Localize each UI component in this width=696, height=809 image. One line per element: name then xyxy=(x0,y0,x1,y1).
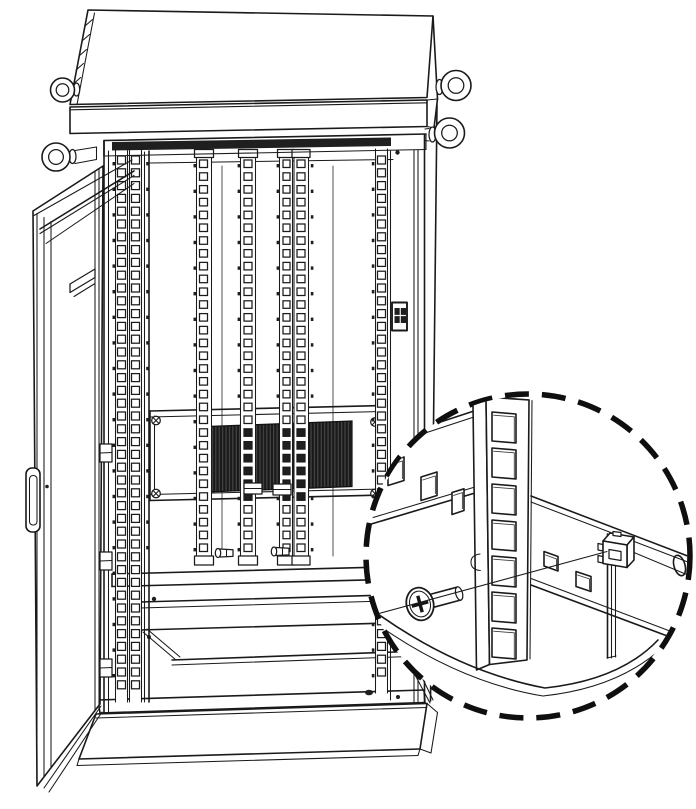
rack-hole xyxy=(283,237,290,245)
rack-hole xyxy=(132,271,140,279)
rack-hole xyxy=(378,438,386,446)
rack-hole xyxy=(118,322,126,330)
rack-hole xyxy=(200,467,208,475)
rack-hole xyxy=(118,489,126,497)
rack-hole xyxy=(118,297,126,305)
rack-hole xyxy=(118,450,126,458)
rack-hole xyxy=(378,246,386,254)
detail-rail-holes xyxy=(492,412,516,659)
rack-hole xyxy=(297,250,305,258)
rack-hole xyxy=(244,326,252,334)
rack-hole xyxy=(200,403,208,411)
rack-hole xyxy=(297,493,305,501)
rack-hole xyxy=(283,186,290,194)
rack-hole xyxy=(132,578,140,586)
rack-hole xyxy=(297,378,305,386)
rivet-dot xyxy=(372,162,375,165)
rack-hole xyxy=(378,642,386,650)
rack-hole xyxy=(200,416,208,424)
technical-illustration xyxy=(0,0,696,809)
rack-hole xyxy=(283,506,290,513)
rack-hole xyxy=(297,352,305,360)
rivet-dot xyxy=(238,497,241,500)
rack-hole xyxy=(132,566,140,574)
rack-hole xyxy=(297,403,305,411)
rivet-dot xyxy=(372,188,375,191)
rivet-dot xyxy=(311,497,314,500)
rack-hole xyxy=(244,352,252,360)
rack-hole xyxy=(378,271,386,279)
eyebolt-right-lower xyxy=(425,118,465,148)
rivet-dot xyxy=(194,369,197,372)
rivet-dot xyxy=(238,164,241,167)
rack-hole xyxy=(297,416,305,424)
loose-screw xyxy=(215,549,233,558)
rivet-dot xyxy=(311,215,314,218)
rack-hole xyxy=(297,211,305,219)
hole-strip-rail-3 xyxy=(279,152,293,558)
rack-hole xyxy=(118,553,126,561)
rack-hole xyxy=(244,467,252,475)
vent-clip-bracket xyxy=(244,483,262,494)
rack-hole xyxy=(283,262,290,270)
panel-screw xyxy=(152,489,161,498)
rivet-dot xyxy=(113,213,116,216)
rack-hole xyxy=(118,194,126,202)
rack-hole xyxy=(200,544,208,552)
rack-hole xyxy=(244,211,252,219)
rivet-dot xyxy=(113,546,116,549)
rack-hole xyxy=(283,301,290,309)
rack-hole xyxy=(118,540,126,548)
rack-hole xyxy=(118,220,126,228)
rack-hole xyxy=(132,540,140,548)
rack-hole xyxy=(118,425,126,433)
rivet-dot xyxy=(372,674,375,677)
hole-strip-left-frame-b xyxy=(129,148,142,702)
rack-hole xyxy=(200,454,208,462)
rivet-dot xyxy=(113,341,116,344)
rivet-dot xyxy=(311,343,314,346)
rack-hole xyxy=(118,169,126,177)
rack-hole xyxy=(200,186,208,194)
hole-strip-left-frame-a xyxy=(115,148,128,702)
rack-hole xyxy=(297,390,305,398)
rivet-dot xyxy=(113,264,116,267)
rack-hole xyxy=(200,442,208,450)
rack-hole xyxy=(297,339,305,347)
rivet-dot xyxy=(372,290,375,293)
rivet-dot xyxy=(372,648,375,651)
rack-hole xyxy=(118,284,126,292)
rack-hole xyxy=(297,518,305,526)
rack-hole xyxy=(378,233,386,241)
door-latch xyxy=(392,303,407,331)
rivet-dot xyxy=(194,446,197,449)
rivet-dot xyxy=(311,522,314,525)
rivet-dot xyxy=(277,522,280,525)
rack-hole xyxy=(132,617,140,625)
rivet-dot xyxy=(194,522,197,525)
rivet-dot xyxy=(372,239,375,242)
rack-hole xyxy=(118,630,126,638)
rivet-dot xyxy=(372,341,375,344)
rack-hole xyxy=(132,489,140,497)
rivet-dot xyxy=(238,266,241,269)
rack-hole xyxy=(132,591,140,599)
rack-hole xyxy=(132,386,140,394)
rack-hole xyxy=(297,365,305,373)
rivet-dot xyxy=(238,548,241,551)
rack-hole xyxy=(132,668,140,676)
rack-hole xyxy=(200,518,208,526)
rack-hole xyxy=(118,578,126,586)
rivet-dot xyxy=(277,369,280,372)
rack-hole xyxy=(283,429,290,437)
rivet-dot xyxy=(311,266,314,269)
rivet-dot xyxy=(372,367,375,370)
rack-hole xyxy=(283,314,290,322)
rack-hole xyxy=(200,339,208,347)
rack-hole xyxy=(118,655,126,663)
rivet-dot xyxy=(194,420,197,423)
rack-hole xyxy=(118,668,126,676)
rack-hole xyxy=(283,352,290,360)
rack-hole xyxy=(283,224,290,232)
rivet-dot xyxy=(277,241,280,244)
rack-hole xyxy=(378,374,386,382)
rivet-dot xyxy=(372,469,375,472)
rivet-dot xyxy=(238,369,241,372)
rivet-dot xyxy=(113,648,116,651)
rack-hole xyxy=(132,463,140,471)
rack-hole xyxy=(283,173,290,181)
rack-hole xyxy=(378,668,386,676)
rack-hole xyxy=(297,288,305,296)
rack-hole xyxy=(378,425,386,433)
rack-hole xyxy=(118,514,126,522)
rail-top-plate xyxy=(292,150,310,158)
rack-hole xyxy=(132,527,140,535)
rack-hole xyxy=(132,438,140,446)
rivet-dot xyxy=(113,239,116,242)
rack-hole xyxy=(118,566,126,574)
rack-hole xyxy=(118,233,126,241)
rivet-dot xyxy=(113,674,116,677)
rail-foot xyxy=(239,556,258,565)
rack-hole xyxy=(283,467,290,475)
rack-hole xyxy=(378,194,386,202)
rack-hole xyxy=(378,412,386,420)
rack-hole xyxy=(132,374,140,382)
rack-hole xyxy=(244,339,252,347)
rack-hole xyxy=(297,237,305,245)
rack-hole xyxy=(118,591,126,599)
rack-hole xyxy=(244,442,252,450)
rack-hole xyxy=(118,386,126,394)
rivet-dot xyxy=(113,597,116,600)
rivet-dot xyxy=(113,623,116,626)
rack-hole xyxy=(378,463,386,471)
rack-hole xyxy=(200,429,208,437)
rack-hole xyxy=(297,314,305,322)
rack-hole xyxy=(378,156,386,164)
rack-hole xyxy=(297,198,305,206)
rack-hole xyxy=(132,655,140,663)
rivet-dot xyxy=(194,497,197,500)
rack-hole xyxy=(378,348,386,356)
rack-hole xyxy=(297,454,305,462)
rivet-dot xyxy=(194,241,197,244)
rivet-dot xyxy=(194,343,197,346)
rivet-dot xyxy=(238,343,241,346)
rivet-dot xyxy=(311,241,314,244)
rack-hole xyxy=(200,326,208,334)
rack-hole xyxy=(200,314,208,322)
rack-hole xyxy=(244,262,252,270)
rack-hole xyxy=(132,476,140,484)
rack-hole xyxy=(297,429,305,437)
rivet-dot xyxy=(194,471,197,474)
rack-hole xyxy=(200,378,208,386)
opening-top-line xyxy=(150,160,393,164)
hole-strip-rail-2 xyxy=(240,152,256,558)
illustration-page xyxy=(0,0,696,809)
rivet-dot xyxy=(238,522,241,525)
rack-hole xyxy=(244,506,252,513)
rivet-dot xyxy=(277,215,280,218)
rivet-dot xyxy=(194,394,197,397)
rack-hole xyxy=(132,514,140,522)
rack-hole xyxy=(200,506,208,513)
rivet-dot xyxy=(194,266,197,269)
rack-hole xyxy=(378,297,386,305)
rack-hole xyxy=(132,246,140,254)
rack-hole xyxy=(283,442,290,450)
rack-hole xyxy=(244,544,252,552)
rivet-dot xyxy=(113,444,116,447)
rack-hole xyxy=(118,502,126,510)
detail-callout xyxy=(366,394,690,718)
rack-hole xyxy=(244,288,252,296)
rivet-dot xyxy=(113,392,116,395)
rack-hole xyxy=(200,365,208,373)
rivet-dot xyxy=(194,292,197,295)
rack-hole xyxy=(118,156,126,164)
rack-hole xyxy=(118,438,126,446)
rack-hole xyxy=(132,502,140,510)
rack-hole xyxy=(132,207,140,215)
rivet-dot xyxy=(311,369,314,372)
rack-hole xyxy=(132,156,140,164)
rack-hole xyxy=(200,237,208,245)
rack-hole xyxy=(132,399,140,407)
rack-hole xyxy=(200,173,208,181)
rack-hole xyxy=(297,301,305,309)
rack-hole xyxy=(378,655,386,663)
rivet-dot xyxy=(194,548,197,551)
rack-hole xyxy=(297,224,305,232)
rack-hole xyxy=(200,160,208,168)
rack-hole xyxy=(297,160,305,168)
rail-foot xyxy=(292,556,310,565)
rack-hole xyxy=(132,553,140,561)
rack-hole xyxy=(200,390,208,398)
rack-hole xyxy=(200,480,208,488)
rack-hole xyxy=(132,194,140,202)
rack-hole xyxy=(297,506,305,513)
panel-screw xyxy=(152,416,161,425)
rack-hole xyxy=(378,182,386,190)
rack-hole xyxy=(132,322,140,330)
rivet-dot xyxy=(194,164,197,167)
rivet-dot xyxy=(113,495,116,498)
rack-hole xyxy=(283,250,290,258)
rack-hole xyxy=(244,275,252,283)
rivet-dot xyxy=(113,520,116,523)
rivet-dot xyxy=(372,316,375,319)
rack-hole xyxy=(378,361,386,369)
rack-hole xyxy=(200,493,208,501)
rack-hole xyxy=(283,365,290,373)
rack-hole xyxy=(378,284,386,292)
rack-hole xyxy=(378,220,386,228)
vent-clip-bracket xyxy=(273,484,291,495)
rivet-dot xyxy=(194,190,197,193)
rack-hole xyxy=(132,182,140,190)
rivet-dot xyxy=(238,215,241,218)
rack-hole xyxy=(118,642,126,650)
rivet-dot xyxy=(238,190,241,193)
rack-hole xyxy=(118,271,126,279)
rack-hole xyxy=(297,442,305,450)
rack-hole xyxy=(297,544,305,552)
rack-hole xyxy=(200,262,208,270)
rack-hole xyxy=(244,390,252,398)
rack-hole xyxy=(244,518,252,526)
door-lock-dot xyxy=(45,485,49,489)
rack-hole xyxy=(200,224,208,232)
rack-hole xyxy=(244,224,252,232)
rivet-dot xyxy=(372,418,375,421)
rack-hole xyxy=(283,454,290,462)
rack-hole xyxy=(118,246,126,254)
rack-hole xyxy=(118,604,126,612)
rack-hole xyxy=(118,399,126,407)
rack-hole xyxy=(244,173,252,181)
rack-hole xyxy=(244,160,252,168)
rivet-dot xyxy=(277,318,280,321)
rivet-dot xyxy=(277,343,280,346)
rivet-dot xyxy=(277,164,280,167)
rivet-dot xyxy=(113,367,116,370)
rack-hole xyxy=(283,198,290,206)
rack-hole xyxy=(283,275,290,283)
rack-hole xyxy=(283,403,290,411)
eyebolt-left xyxy=(42,143,97,171)
rack-hole xyxy=(132,361,140,369)
rack-hole xyxy=(118,361,126,369)
rack-hole xyxy=(200,301,208,309)
door-handle xyxy=(26,468,40,532)
rack-hole xyxy=(297,467,305,475)
band-screw xyxy=(365,690,373,696)
rack-hole xyxy=(132,425,140,433)
rack-hole xyxy=(378,399,386,407)
rack-hole xyxy=(200,198,208,206)
rack-hole xyxy=(244,531,252,539)
rivet-dot xyxy=(113,290,116,293)
roof-top xyxy=(70,10,433,105)
rivet-dot xyxy=(277,190,280,193)
rivet-dot xyxy=(194,215,197,218)
rack-hole xyxy=(283,531,290,539)
frame-screw xyxy=(395,150,399,154)
hole-strip-rail-1 xyxy=(196,152,212,558)
rack-hole xyxy=(283,160,290,168)
rivet-dot xyxy=(113,469,116,472)
rack-hole xyxy=(118,412,126,420)
rack-hole xyxy=(283,211,290,219)
cabinet-roof xyxy=(70,10,438,134)
rivet-dot xyxy=(372,444,375,447)
eyebolt-right-upper xyxy=(436,71,471,101)
rack-hole xyxy=(283,339,290,347)
rack-hole xyxy=(244,378,252,386)
rack-hole xyxy=(283,288,290,296)
rivet-dot xyxy=(113,162,116,165)
rivet-dot xyxy=(113,418,116,421)
rack-hole xyxy=(244,237,252,245)
rack-hole xyxy=(118,258,126,266)
rivet-dot xyxy=(372,264,375,267)
shelf-screw xyxy=(152,597,156,601)
rack-hole xyxy=(118,476,126,484)
rack-hole xyxy=(378,207,386,215)
rivet-dot xyxy=(372,392,375,395)
rack-hole xyxy=(244,403,252,411)
rack-hole xyxy=(297,326,305,334)
rack-hole xyxy=(118,681,126,689)
rivet-dot xyxy=(311,394,314,397)
rack-hole xyxy=(118,374,126,382)
rack-hole xyxy=(378,335,386,343)
rack-hole xyxy=(244,365,252,373)
rack-hole xyxy=(132,310,140,318)
rack-hole xyxy=(244,198,252,206)
rivet-dot xyxy=(238,318,241,321)
rack-hole xyxy=(244,429,252,437)
rack-hole xyxy=(378,258,386,266)
rack-hole xyxy=(132,258,140,266)
rack-hole xyxy=(118,527,126,535)
base-plinth xyxy=(77,704,438,766)
rivet-dot xyxy=(311,548,314,551)
rack-hole xyxy=(132,335,140,343)
rack-hole xyxy=(297,531,305,539)
rack-hole xyxy=(118,617,126,625)
rivet-dot xyxy=(311,164,314,167)
rivet-dot xyxy=(113,572,116,575)
rack-hole xyxy=(132,642,140,650)
rack-hole xyxy=(132,284,140,292)
rivet-dot xyxy=(277,266,280,269)
rack-hole xyxy=(244,314,252,322)
rack-hole xyxy=(283,390,290,398)
rack-hole xyxy=(378,322,386,330)
rivet-dot xyxy=(113,316,116,319)
rack-hole xyxy=(132,348,140,356)
